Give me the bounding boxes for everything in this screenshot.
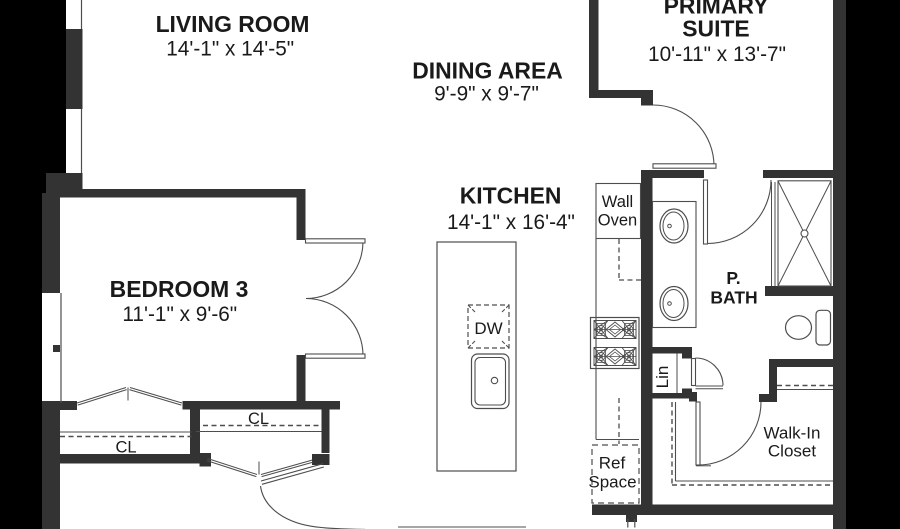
svg-text:CL: CL — [248, 410, 269, 428]
svg-text:11'-1" x 9'-6": 11'-1" x 9'-6" — [122, 303, 237, 326]
svg-text:SUITE: SUITE — [682, 15, 749, 41]
svg-text:14'-1" x 16'-4": 14'-1" x 16'-4" — [447, 211, 575, 234]
svg-text:BATH: BATH — [710, 287, 757, 307]
svg-text:DINING AREA: DINING AREA — [412, 58, 563, 84]
svg-text:BEDROOM 3: BEDROOM 3 — [110, 276, 249, 302]
svg-text:Lin: Lin — [653, 366, 672, 389]
svg-text:9'-9" x 9'-7": 9'-9" x 9'-7" — [434, 83, 539, 106]
svg-text:CL: CL — [115, 439, 136, 457]
svg-text:Oven: Oven — [598, 211, 637, 229]
svg-text:Wall: Wall — [602, 193, 633, 211]
svg-text:DW: DW — [474, 319, 502, 338]
svg-text:Walk-In: Walk-In — [764, 424, 821, 443]
svg-text:10'-11" x 13'-7": 10'-11" x 13'-7" — [648, 43, 786, 66]
svg-text:Ref: Ref — [599, 453, 626, 472]
svg-text:KITCHEN: KITCHEN — [460, 183, 562, 209]
svg-text:Closet: Closet — [768, 441, 816, 460]
svg-text:P.: P. — [726, 268, 740, 288]
svg-text:14'-1" x 14'-5": 14'-1" x 14'-5" — [166, 38, 294, 61]
svg-text:Space: Space — [588, 472, 636, 491]
svg-text:LIVING ROOM: LIVING ROOM — [156, 11, 310, 37]
